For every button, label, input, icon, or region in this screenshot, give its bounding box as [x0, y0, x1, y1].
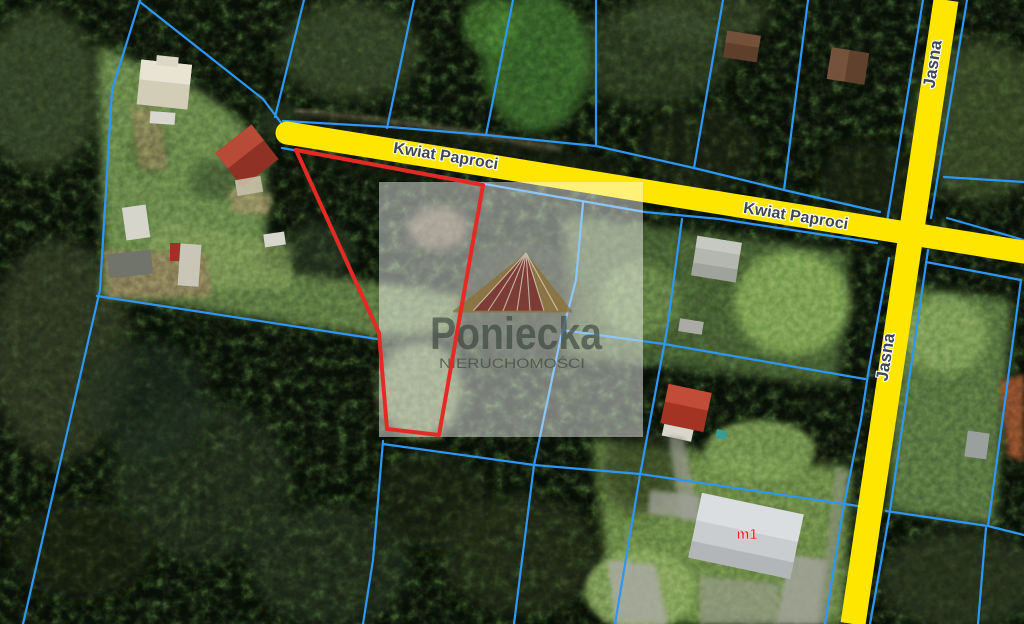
svg-text:m1: m1	[737, 527, 758, 543]
svg-text:NIERUCHOMOŚCI: NIERUCHOMOŚCI	[439, 356, 585, 371]
